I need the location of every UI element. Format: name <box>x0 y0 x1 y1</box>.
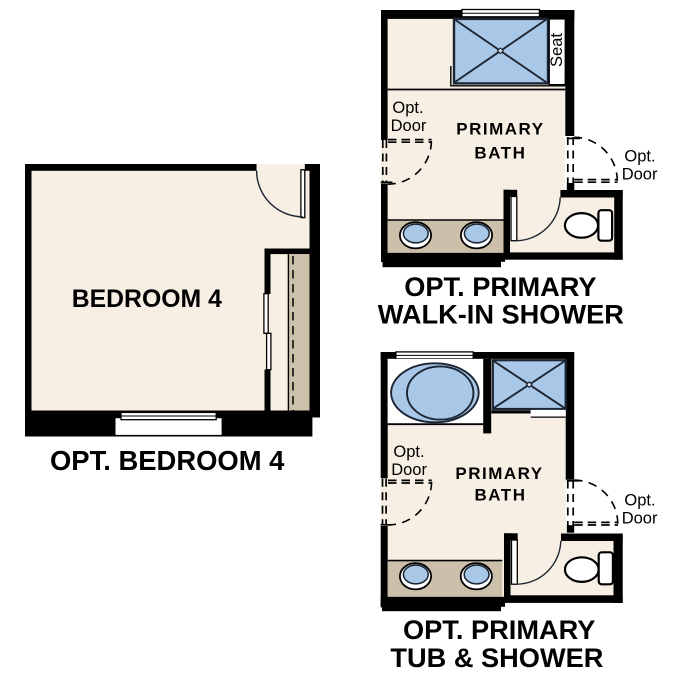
svg-text:TUB & SHOWER: TUB & SHOWER <box>390 642 603 673</box>
svg-text:PRIMARY: PRIMARY <box>456 119 544 138</box>
svg-text:Opt.: Opt. <box>624 147 655 165</box>
svg-text:BEDROOM 4: BEDROOM 4 <box>72 286 222 313</box>
svg-text:Door: Door <box>391 461 427 479</box>
svg-text:OPT. PRIMARY: OPT. PRIMARY <box>404 271 596 302</box>
svg-text:Door: Door <box>391 117 427 135</box>
svg-text:Opt.: Opt. <box>624 492 655 510</box>
svg-text:BATH: BATH <box>475 485 527 504</box>
svg-text:BATH: BATH <box>474 144 526 163</box>
svg-text:Door: Door <box>622 165 658 183</box>
svg-text:OPT. BEDROOM 4: OPT. BEDROOM 4 <box>50 445 285 476</box>
svg-text:Opt.: Opt. <box>392 99 423 117</box>
svg-text:OPT. PRIMARY: OPT. PRIMARY <box>403 614 595 645</box>
svg-text:WALK-IN SHOWER: WALK-IN SHOWER <box>378 298 625 329</box>
svg-text:Seat: Seat <box>548 33 566 67</box>
svg-text:Door: Door <box>622 510 658 528</box>
svg-text:Opt.: Opt. <box>393 443 424 461</box>
svg-text:PRIMARY: PRIMARY <box>455 464 543 483</box>
